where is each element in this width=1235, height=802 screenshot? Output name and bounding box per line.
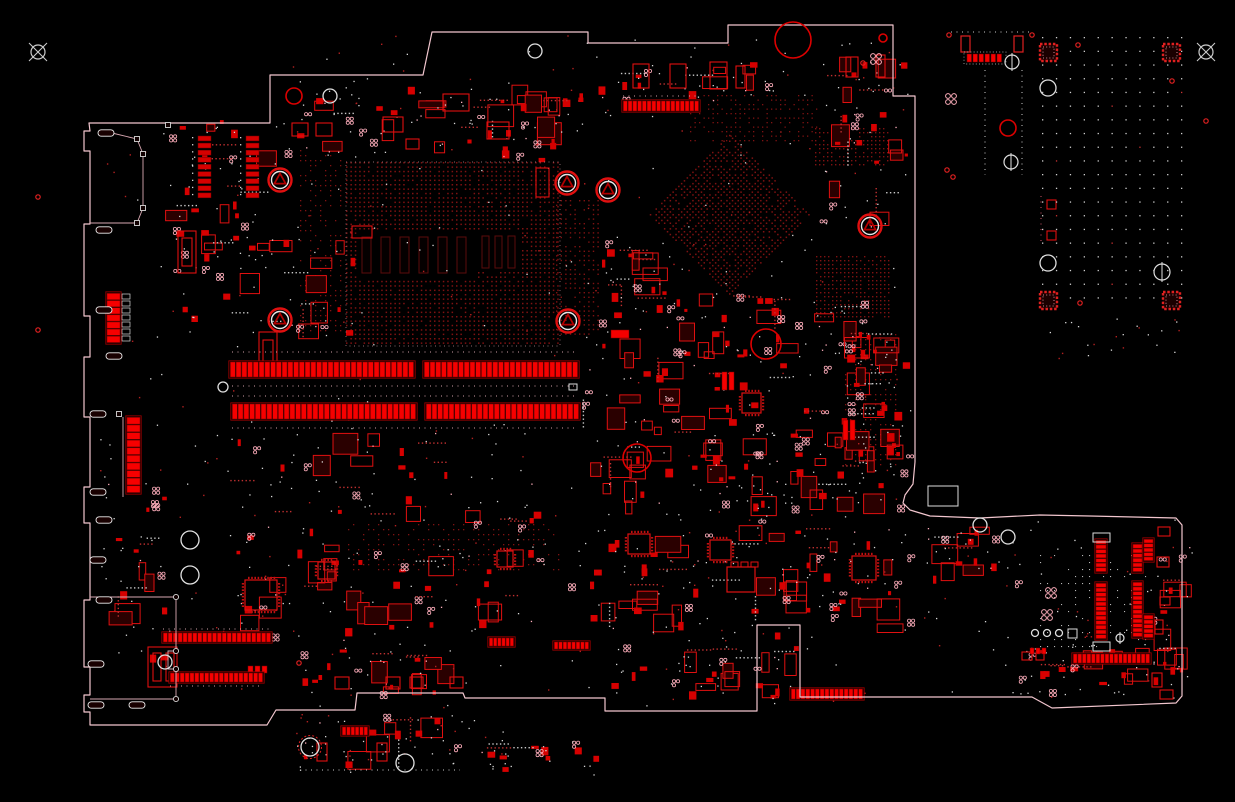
- tab-connector[interactable]: [341, 726, 369, 736]
- sodimm-row2-seg2[interactable]: [425, 403, 580, 420]
- left-edge-header-2[interactable]: [126, 416, 141, 494]
- wing-conn-c2[interactable]: [1143, 614, 1154, 639]
- pcb-svg[interactable]: [0, 0, 1235, 802]
- bottom-left-connector-1[interactable]: [162, 632, 272, 643]
- wing-conn-b2[interactable]: [1132, 581, 1143, 638]
- wing-conn-a1[interactable]: [1095, 539, 1107, 573]
- sodimm-row1-seg1[interactable]: [229, 361, 415, 378]
- notch-connector[interactable]: [790, 688, 864, 700]
- wing-conn-a2[interactable]: [1095, 582, 1107, 640]
- wing-conn-h[interactable]: [1072, 653, 1151, 664]
- center-connector-2[interactable]: [553, 641, 590, 650]
- sodimm-row1-seg2[interactable]: [423, 361, 579, 378]
- left-edge-header-1[interactable]: [106, 292, 121, 344]
- sodimm-row2-seg1[interactable]: [231, 403, 417, 420]
- board-viewer-canvas[interactable]: [0, 0, 1235, 802]
- cpu-component-voids: [357, 230, 521, 278]
- bottom-left-connector-2[interactable]: [169, 672, 264, 683]
- center-connector-1[interactable]: [488, 637, 515, 647]
- top-board-connector[interactable]: [622, 100, 700, 112]
- wing-conn-c1[interactable]: [1143, 538, 1154, 562]
- wing-conn-b1[interactable]: [1132, 543, 1143, 573]
